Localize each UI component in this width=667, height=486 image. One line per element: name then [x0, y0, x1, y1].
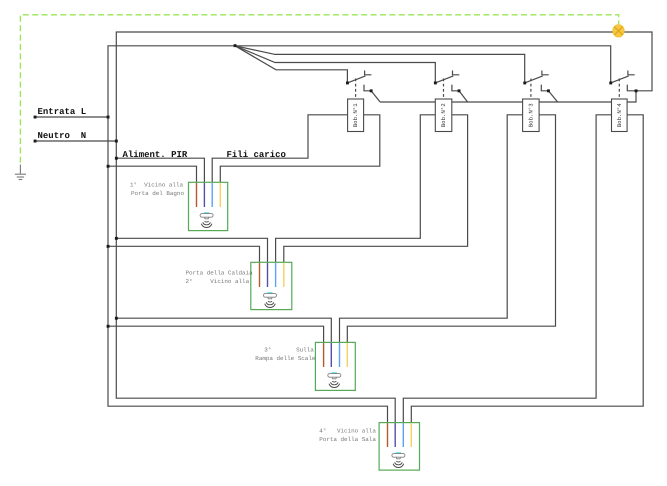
svg-text:Bob.N°2: Bob.N°2	[440, 103, 447, 127]
svg-text:Bob.N°1: Bob.N°1	[352, 103, 359, 127]
svg-text:Aliment. PIR: Aliment. PIR	[123, 150, 188, 160]
svg-text:1° Vicino alla: 1° Vicino alla	[130, 181, 183, 188]
svg-text:Porta della Caldaia: Porta della Caldaia	[186, 270, 254, 277]
svg-text:Bob.N°4: Bob.N°4	[616, 103, 623, 127]
svg-text:4° Vicino alla: 4° Vicino alla	[319, 427, 376, 434]
svg-text:2° Vicino alla: 2° Vicino alla	[186, 278, 250, 285]
svg-text:Rampa delle Scale: Rampa delle Scale	[255, 355, 316, 362]
svg-text:Porta del Bagno: Porta del Bagno	[131, 190, 184, 197]
svg-text:3° Sulla: 3° Sulla	[264, 347, 314, 354]
svg-text:Bob.N°3: Bob.N°3	[527, 103, 534, 127]
svg-text:Fili carico: Fili carico	[227, 150, 286, 160]
svg-text:Entrata L: Entrata L	[38, 107, 87, 117]
svg-text:Neutro N: Neutro N	[38, 131, 87, 141]
svg-text:Porta della Sala: Porta della Sala	[319, 436, 376, 443]
